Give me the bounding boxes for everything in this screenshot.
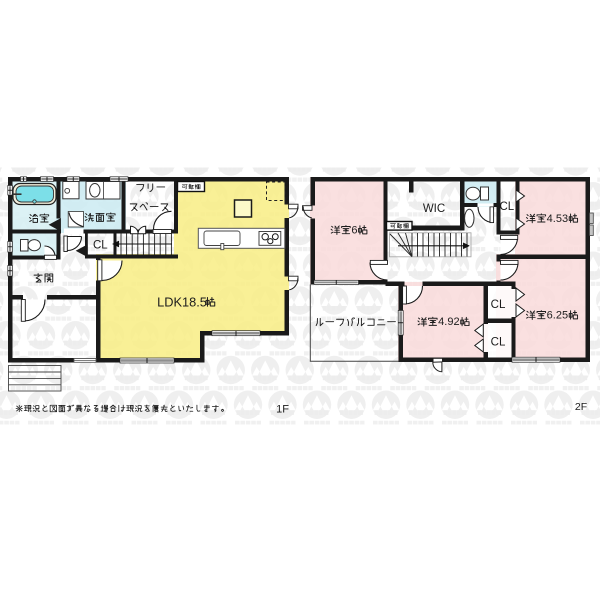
svg-text:CL: CL — [491, 299, 506, 311]
svg-text:CL: CL — [93, 239, 108, 251]
svg-text:WIC: WIC — [423, 203, 445, 215]
svg-text:CL: CL — [499, 201, 514, 213]
svg-text:2F: 2F — [575, 401, 587, 413]
svg-text:LDK18.5: LDK18.5 — [157, 294, 207, 309]
svg-text:CL: CL — [491, 337, 506, 349]
svg-text:1F: 1F — [276, 403, 289, 415]
svg-text:6: 6 — [351, 225, 357, 237]
svg-text:3: 3 — [562, 213, 568, 225]
svg-text:5: 5 — [562, 310, 568, 322]
svg-text:2: 2 — [453, 316, 459, 328]
